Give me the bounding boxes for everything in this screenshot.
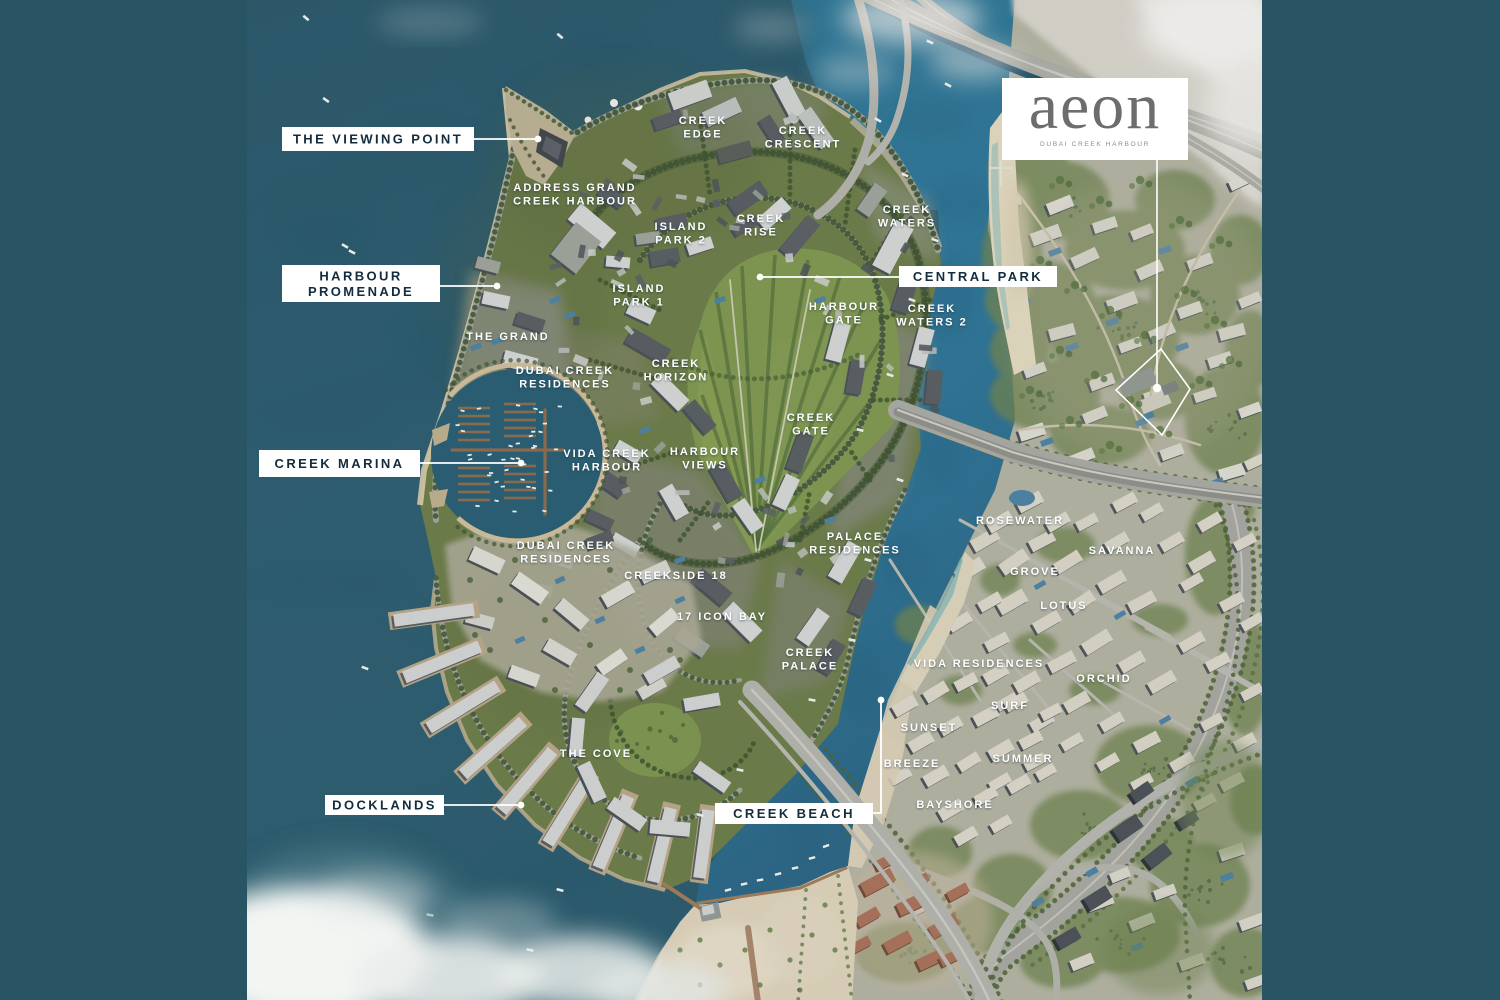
svg-text:CENTRAL PARK: CENTRAL PARK [913, 269, 1043, 284]
svg-text:VIDA RESIDENCES: VIDA RESIDENCES [914, 658, 1044, 670]
svg-text:SURF: SURF [991, 700, 1029, 712]
svg-text:CREEKEDGE: CREEKEDGE [679, 115, 728, 140]
svg-text:aeon: aeon [1029, 70, 1162, 143]
svg-text:SUMMER: SUMMER [993, 753, 1054, 765]
svg-text:DUBAI CREEKRESIDENCES: DUBAI CREEKRESIDENCES [516, 365, 614, 390]
svg-text:THE VIEWING POINT: THE VIEWING POINT [293, 132, 463, 147]
svg-text:THE COVE: THE COVE [560, 748, 632, 760]
svg-text:CREEKWATERS: CREEKWATERS [878, 204, 936, 229]
svg-text:ROSEWATER: ROSEWATER [976, 515, 1064, 527]
svg-text:CREEK MARINA: CREEK MARINA [275, 456, 405, 471]
svg-text:17 ICON BAY: 17 ICON BAY [677, 611, 767, 623]
svg-text:ISLANDPARK 1: ISLANDPARK 1 [613, 283, 666, 308]
svg-text:SUNSET: SUNSET [901, 722, 958, 734]
svg-text:HARBOURPROMENADE: HARBOURPROMENADE [308, 269, 414, 300]
svg-text:SAVANNA: SAVANNA [1089, 545, 1156, 557]
svg-text:CREEKHORIZON: CREEKHORIZON [644, 358, 709, 383]
svg-text:CREEK BEACH: CREEK BEACH [733, 806, 855, 821]
svg-text:ADDRESS GRANDCREEK HARBOUR: ADDRESS GRANDCREEK HARBOUR [513, 182, 637, 207]
svg-text:THE GRAND: THE GRAND [466, 331, 549, 343]
svg-text:CREEKPALACE: CREEKPALACE [782, 647, 838, 672]
svg-text:GROVE: GROVE [1010, 566, 1060, 578]
svg-text:BREEZE: BREEZE [884, 758, 941, 770]
svg-text:DOCKLANDS: DOCKLANDS [332, 798, 437, 813]
svg-text:CREEKGATE: CREEKGATE [787, 412, 836, 437]
svg-text:LOTUS: LOTUS [1040, 600, 1087, 612]
svg-text:ISLANDPARK 2: ISLANDPARK 2 [655, 221, 708, 246]
svg-text:DUBAI CREEKRESIDENCES: DUBAI CREEKRESIDENCES [517, 540, 615, 565]
svg-text:CREEKSIDE 18: CREEKSIDE 18 [624, 570, 727, 582]
svg-text:DUBAI CREEK HARBOUR: DUBAI CREEK HARBOUR [1040, 141, 1150, 148]
svg-text:VIDA CREEKHARBOUR: VIDA CREEKHARBOUR [563, 448, 650, 473]
svg-text:BAYSHORE: BAYSHORE [916, 799, 993, 811]
svg-text:ORCHID: ORCHID [1076, 673, 1131, 685]
